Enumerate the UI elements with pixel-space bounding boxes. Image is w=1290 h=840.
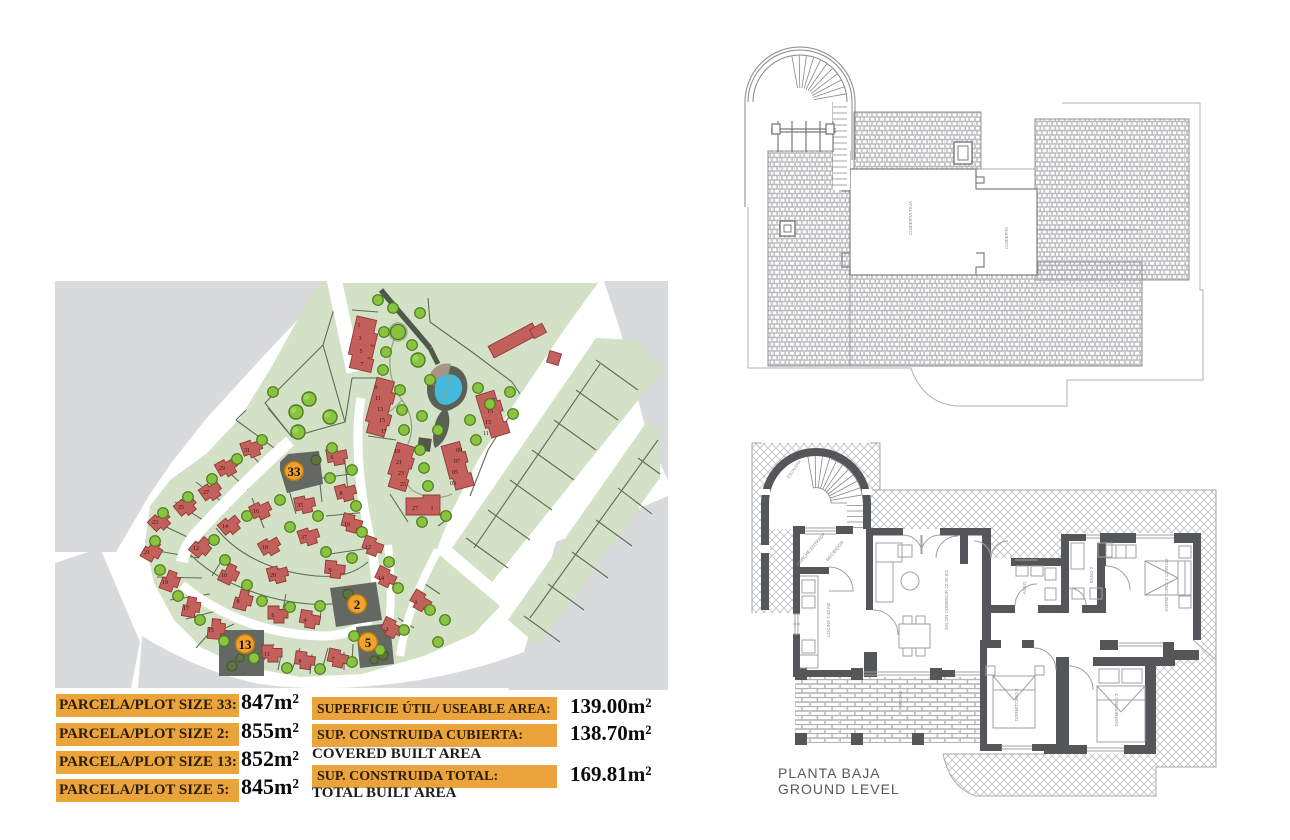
svg-text:27: 27 — [203, 490, 209, 496]
svg-text:COCINA 7.40 m2: COCINA 7.40 m2 — [826, 602, 831, 637]
svg-text:11: 11 — [483, 431, 489, 437]
svg-text:25: 25 — [178, 505, 184, 511]
svg-text:8: 8 — [237, 599, 240, 605]
svg-text:5: 5 — [365, 635, 372, 650]
svg-text:35: 35 — [297, 503, 303, 509]
svg-text:13: 13 — [377, 407, 383, 413]
svg-text:1: 1 — [415, 600, 418, 606]
svg-text:14: 14 — [222, 524, 228, 530]
svg-text:33: 33 — [288, 464, 302, 479]
svg-text:9: 9 — [299, 659, 302, 665]
svg-text:18: 18 — [262, 545, 268, 551]
svg-text:5: 5 — [360, 349, 363, 355]
svg-text:RECIBIDOR: RECIBIDOR — [825, 539, 845, 562]
svg-text:9: 9 — [375, 385, 378, 391]
svg-text:07: 07 — [454, 459, 460, 465]
svg-text:PORCHE: PORCHE — [898, 690, 903, 709]
svg-text:BANO 2: BANO 2 — [1089, 566, 1094, 583]
svg-text:16: 16 — [253, 509, 259, 515]
svg-text:03: 03 — [450, 481, 456, 487]
svg-text:ASEO: ASEO — [1022, 581, 1027, 594]
svg-text:19: 19 — [394, 449, 400, 455]
svg-text:DORMITORIO 2: DORMITORIO 2 — [1014, 688, 1019, 721]
svg-text:9: 9 — [329, 568, 332, 574]
svg-text:13: 13 — [485, 420, 491, 426]
svg-text:CUBIERTA: CUBIERTA — [1004, 227, 1009, 249]
svg-text:10: 10 — [344, 522, 350, 528]
svg-text:SALON COMEDOR 22.70 m2: SALON COMEDOR 22.70 m2 — [944, 570, 949, 631]
svg-text:05: 05 — [452, 470, 458, 476]
svg-text:23: 23 — [398, 471, 404, 477]
svg-text:DORMITORIO 1 12.90 m2: DORMITORIO 1 12.90 m2 — [1164, 558, 1169, 611]
svg-text:13: 13 — [239, 637, 253, 652]
svg-text:2: 2 — [354, 597, 361, 612]
svg-text:14: 14 — [378, 576, 384, 582]
svg-text:1: 1 — [431, 506, 434, 512]
svg-text:21: 21 — [396, 460, 402, 466]
svg-text:10: 10 — [221, 573, 227, 579]
svg-text:3: 3 — [359, 336, 362, 342]
svg-text:4: 4 — [304, 618, 307, 624]
svg-text:20: 20 — [270, 573, 276, 579]
svg-text:CUBIERTA TEJA: CUBIERTA TEJA — [908, 201, 913, 235]
svg-text:21: 21 — [144, 550, 150, 556]
svg-text:DORMITORIO 3: DORMITORIO 3 — [1114, 693, 1119, 726]
svg-text:31: 31 — [244, 448, 250, 454]
svg-text:PORCHE ENTRADA: PORCHE ENTRADA — [795, 531, 826, 566]
svg-text:09: 09 — [456, 448, 462, 454]
svg-text:19: 19 — [162, 580, 168, 586]
svg-text:29: 29 — [219, 466, 225, 472]
svg-text:6: 6 — [331, 455, 334, 461]
svg-text:27: 27 — [412, 506, 418, 512]
svg-text:11: 11 — [375, 396, 381, 402]
svg-text:23: 23 — [152, 520, 158, 526]
svg-text:3: 3 — [386, 627, 389, 633]
svg-text:15: 15 — [208, 628, 214, 634]
svg-text:7: 7 — [332, 657, 335, 663]
svg-text:25: 25 — [400, 482, 406, 488]
svg-text:12: 12 — [193, 546, 199, 552]
svg-text:7: 7 — [361, 362, 364, 368]
svg-text:15: 15 — [379, 418, 385, 424]
svg-text:12: 12 — [365, 545, 371, 551]
svg-text:17: 17 — [381, 429, 387, 435]
svg-text:8: 8 — [340, 491, 343, 497]
svg-text:11: 11 — [264, 652, 270, 658]
svg-text:6: 6 — [272, 613, 275, 619]
svg-text:17: 17 — [183, 606, 189, 612]
svg-text:37: 37 — [301, 535, 307, 541]
svg-text:1: 1 — [358, 323, 361, 329]
